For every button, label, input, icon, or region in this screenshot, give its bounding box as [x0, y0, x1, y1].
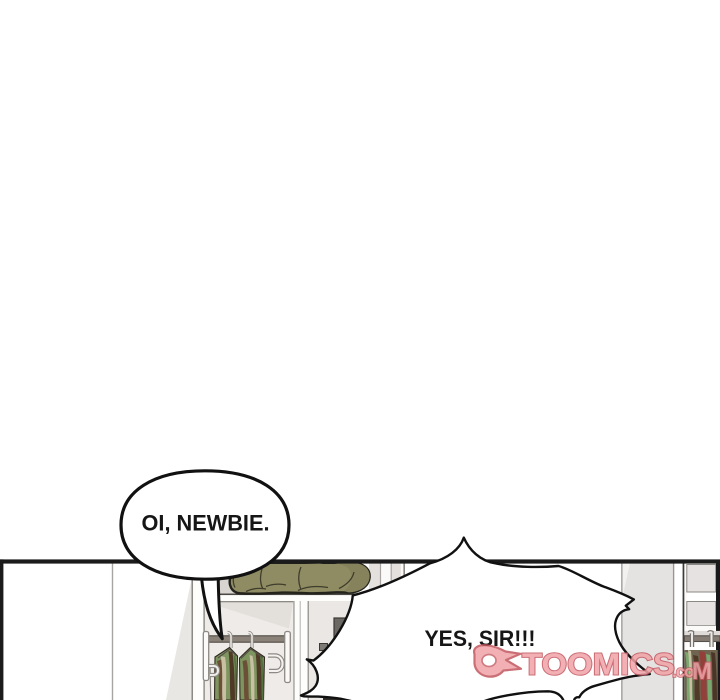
svg-text:OI, NEWBIE.: OI, NEWBIE.: [142, 511, 270, 536]
svg-text:M: M: [692, 658, 712, 685]
svg-text:TOOMICS: TOOMICS: [522, 647, 675, 682]
svg-text:.co: .co: [672, 662, 694, 681]
